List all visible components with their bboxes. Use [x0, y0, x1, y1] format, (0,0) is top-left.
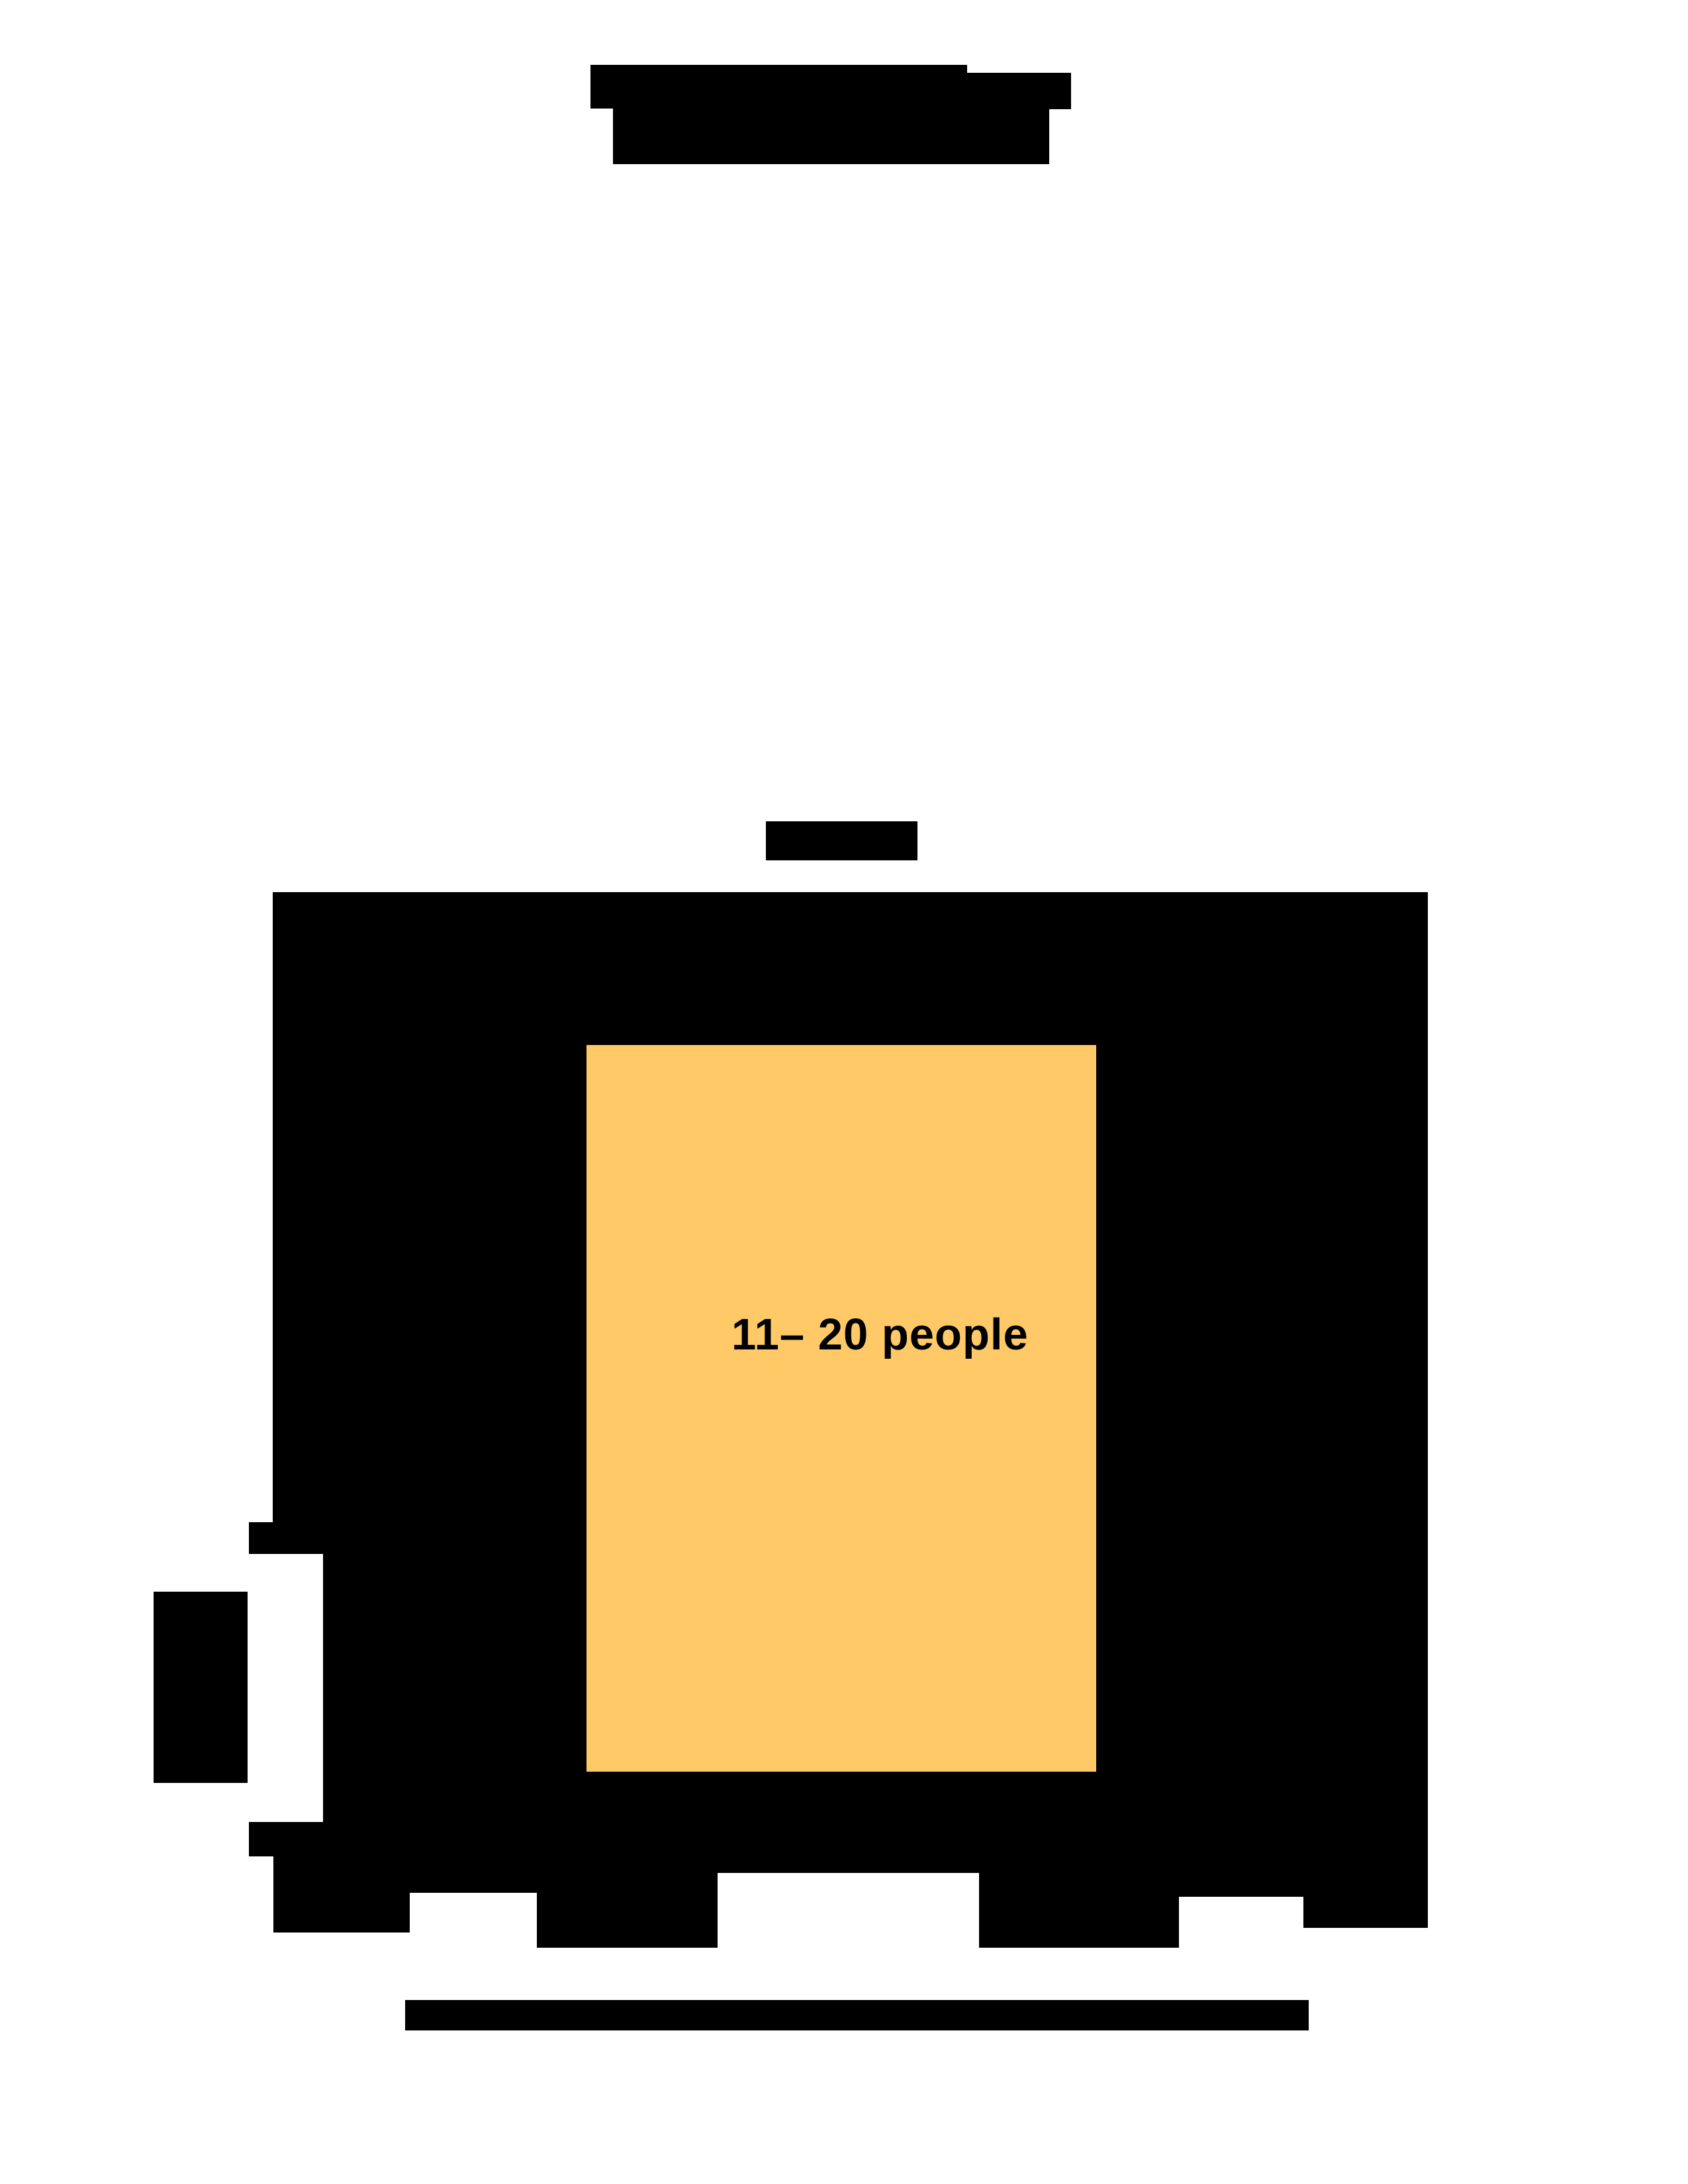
redacted-side-block	[154, 1592, 248, 1783]
legend-highlight-rect	[586, 1045, 1096, 1772]
redacted-title-blob	[590, 65, 1071, 164]
legend-highlight-label: 11– 20 people	[731, 1312, 1029, 1357]
redacted-caption-bar	[766, 821, 917, 860]
page: { "page": { "background": "#ffffff", "de…	[0, 0, 1688, 2184]
redacted-bottom-bar	[405, 2000, 1309, 2030]
figure-canvas	[0, 0, 1688, 2184]
